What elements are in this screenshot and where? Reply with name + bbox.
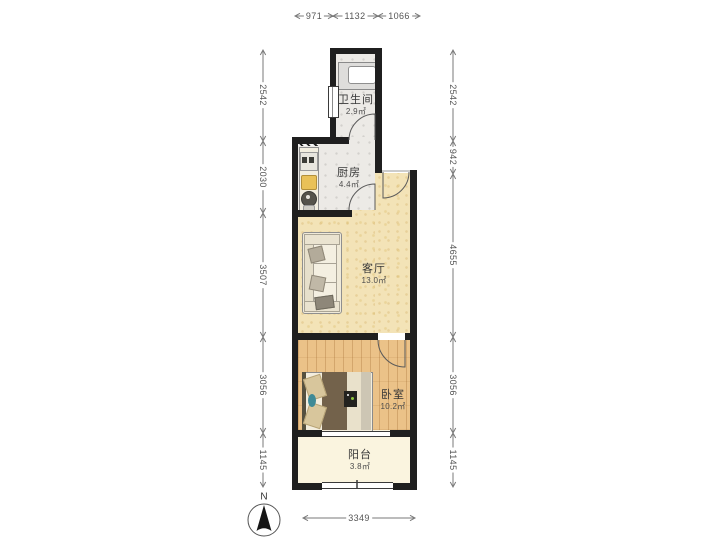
compass (248, 504, 280, 536)
room-area: 2.9㎡ (338, 107, 374, 117)
slider-end-cap (315, 430, 322, 437)
room-name: 客厅 (361, 263, 386, 276)
cutting-board (301, 175, 317, 190)
room-area: 4.4㎡ (337, 180, 361, 190)
wall-balcony-bottom-right (393, 483, 417, 490)
sofa-pillow (309, 275, 327, 293)
bed-tray-dot (351, 397, 354, 400)
dim-left-1: 2542 (258, 82, 268, 108)
wall-balcony-bottom-left (292, 483, 322, 490)
wall-kitchen-top (292, 137, 349, 144)
sink-faucet-dot (306, 195, 310, 199)
dim-left-4: 3056 (258, 372, 268, 398)
dim-right-3: 4655 (448, 242, 458, 268)
room-label-bedroom: 卧室 10.2㎡ (380, 389, 405, 412)
stove-burner-left (302, 157, 307, 163)
wall-bedroom-top-right (405, 333, 417, 340)
room-area: 13.0㎡ (361, 276, 386, 286)
wall-left-outer (292, 137, 298, 490)
room-area: 3.8㎡ (348, 462, 372, 472)
wall-kitchen-bottom (292, 210, 352, 217)
slider-end-cap (390, 430, 397, 437)
dim-left-2: 2030 (258, 164, 268, 190)
dim-right-2: 942 (448, 147, 458, 167)
room-label-kitchen: 厨房 4.4㎡ (337, 167, 361, 190)
sofa-throw (314, 295, 335, 311)
room-name: 卧室 (380, 389, 405, 402)
bed-bench (361, 372, 371, 430)
room-area: 10.2㎡ (380, 402, 405, 412)
wall-bathroom-right (375, 48, 382, 173)
bed-tray-dot (347, 394, 349, 396)
bathtub-basin (348, 66, 376, 84)
dim-arrows-right (450, 50, 455, 487)
dim-left-3: 3507 (258, 262, 268, 288)
room-label-balcony: 阳台 3.8㎡ (348, 449, 372, 472)
dim-top-1: 971 (304, 11, 324, 21)
compass-north-label: N (260, 492, 267, 503)
room-label-living: 客厅 13.0㎡ (361, 263, 386, 286)
compass-circle (248, 504, 280, 536)
dim-right-1: 2542 (448, 82, 458, 108)
dim-top-2: 1132 (343, 11, 368, 21)
dim-left-5: 1145 (258, 448, 268, 473)
room-label-bathroom: 卫生间 2.9㎡ (338, 94, 374, 117)
room-name: 阳台 (348, 449, 372, 462)
wall-right-outer (410, 170, 417, 490)
dim-top-3: 1066 (386, 11, 412, 21)
living-floor-entry (375, 173, 410, 333)
dim-right-4: 3056 (448, 372, 458, 398)
balcony-slider-window (320, 431, 392, 437)
window-pane-line (332, 87, 333, 117)
floor-plan: 971 1132 1066 2542 2030 3507 3056 1145 2… (0, 0, 720, 540)
wall-bedroom-top-left (292, 333, 378, 340)
balcony-window (322, 482, 393, 489)
bed-cushion-teal (308, 394, 316, 407)
dim-bottom-1: 3349 (346, 513, 372, 523)
room-name: 厨房 (337, 167, 361, 180)
room-name: 卫生间 (338, 94, 374, 107)
dim-right-5: 1145 (448, 448, 458, 473)
compass-needle (257, 505, 272, 531)
stove-burner-right (309, 157, 314, 163)
